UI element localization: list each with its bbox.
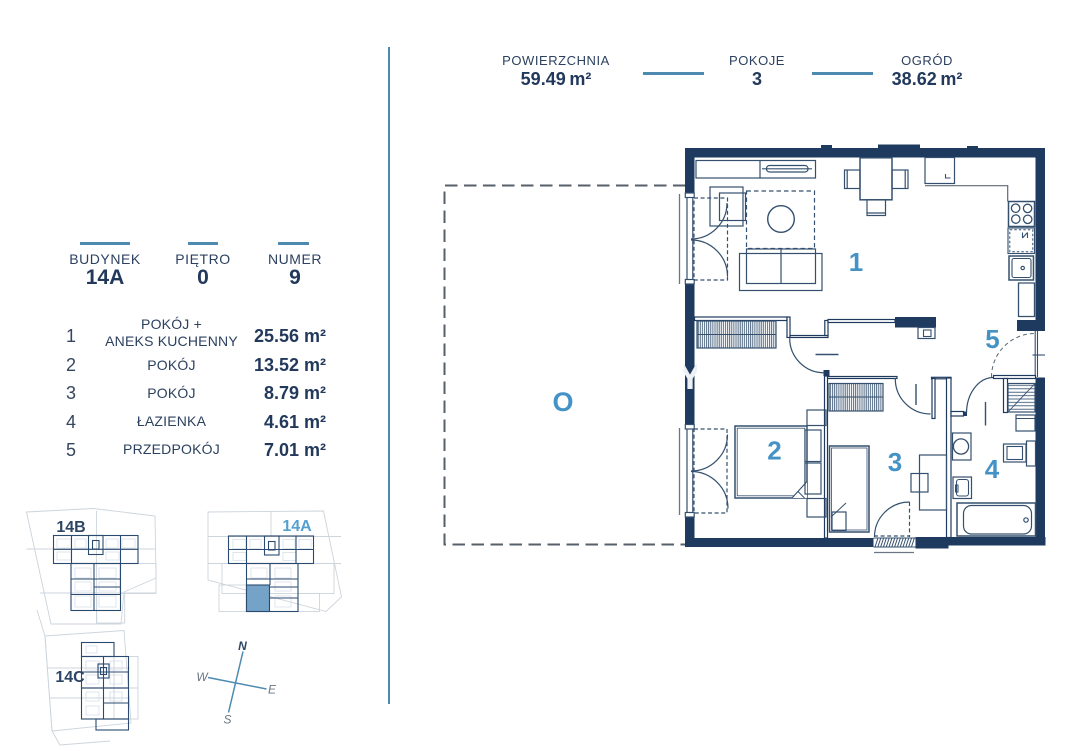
svg-text:2: 2	[767, 436, 781, 466]
svg-text:W: W	[196, 670, 209, 684]
svg-text:5: 5	[985, 324, 999, 354]
svg-text:1: 1	[849, 247, 863, 277]
svg-text:3: 3	[888, 447, 902, 477]
svg-text:E: E	[268, 683, 277, 697]
svg-text:O: O	[552, 387, 573, 417]
svg-text:14B: 14B	[56, 519, 85, 536]
svg-text:S: S	[223, 713, 231, 727]
svg-text:Y: Y	[678, 356, 702, 397]
svg-text:14A: 14A	[282, 518, 312, 535]
svg-text:N: N	[238, 639, 247, 653]
svg-text:14C: 14C	[55, 669, 85, 686]
svg-text:4: 4	[985, 454, 1000, 484]
